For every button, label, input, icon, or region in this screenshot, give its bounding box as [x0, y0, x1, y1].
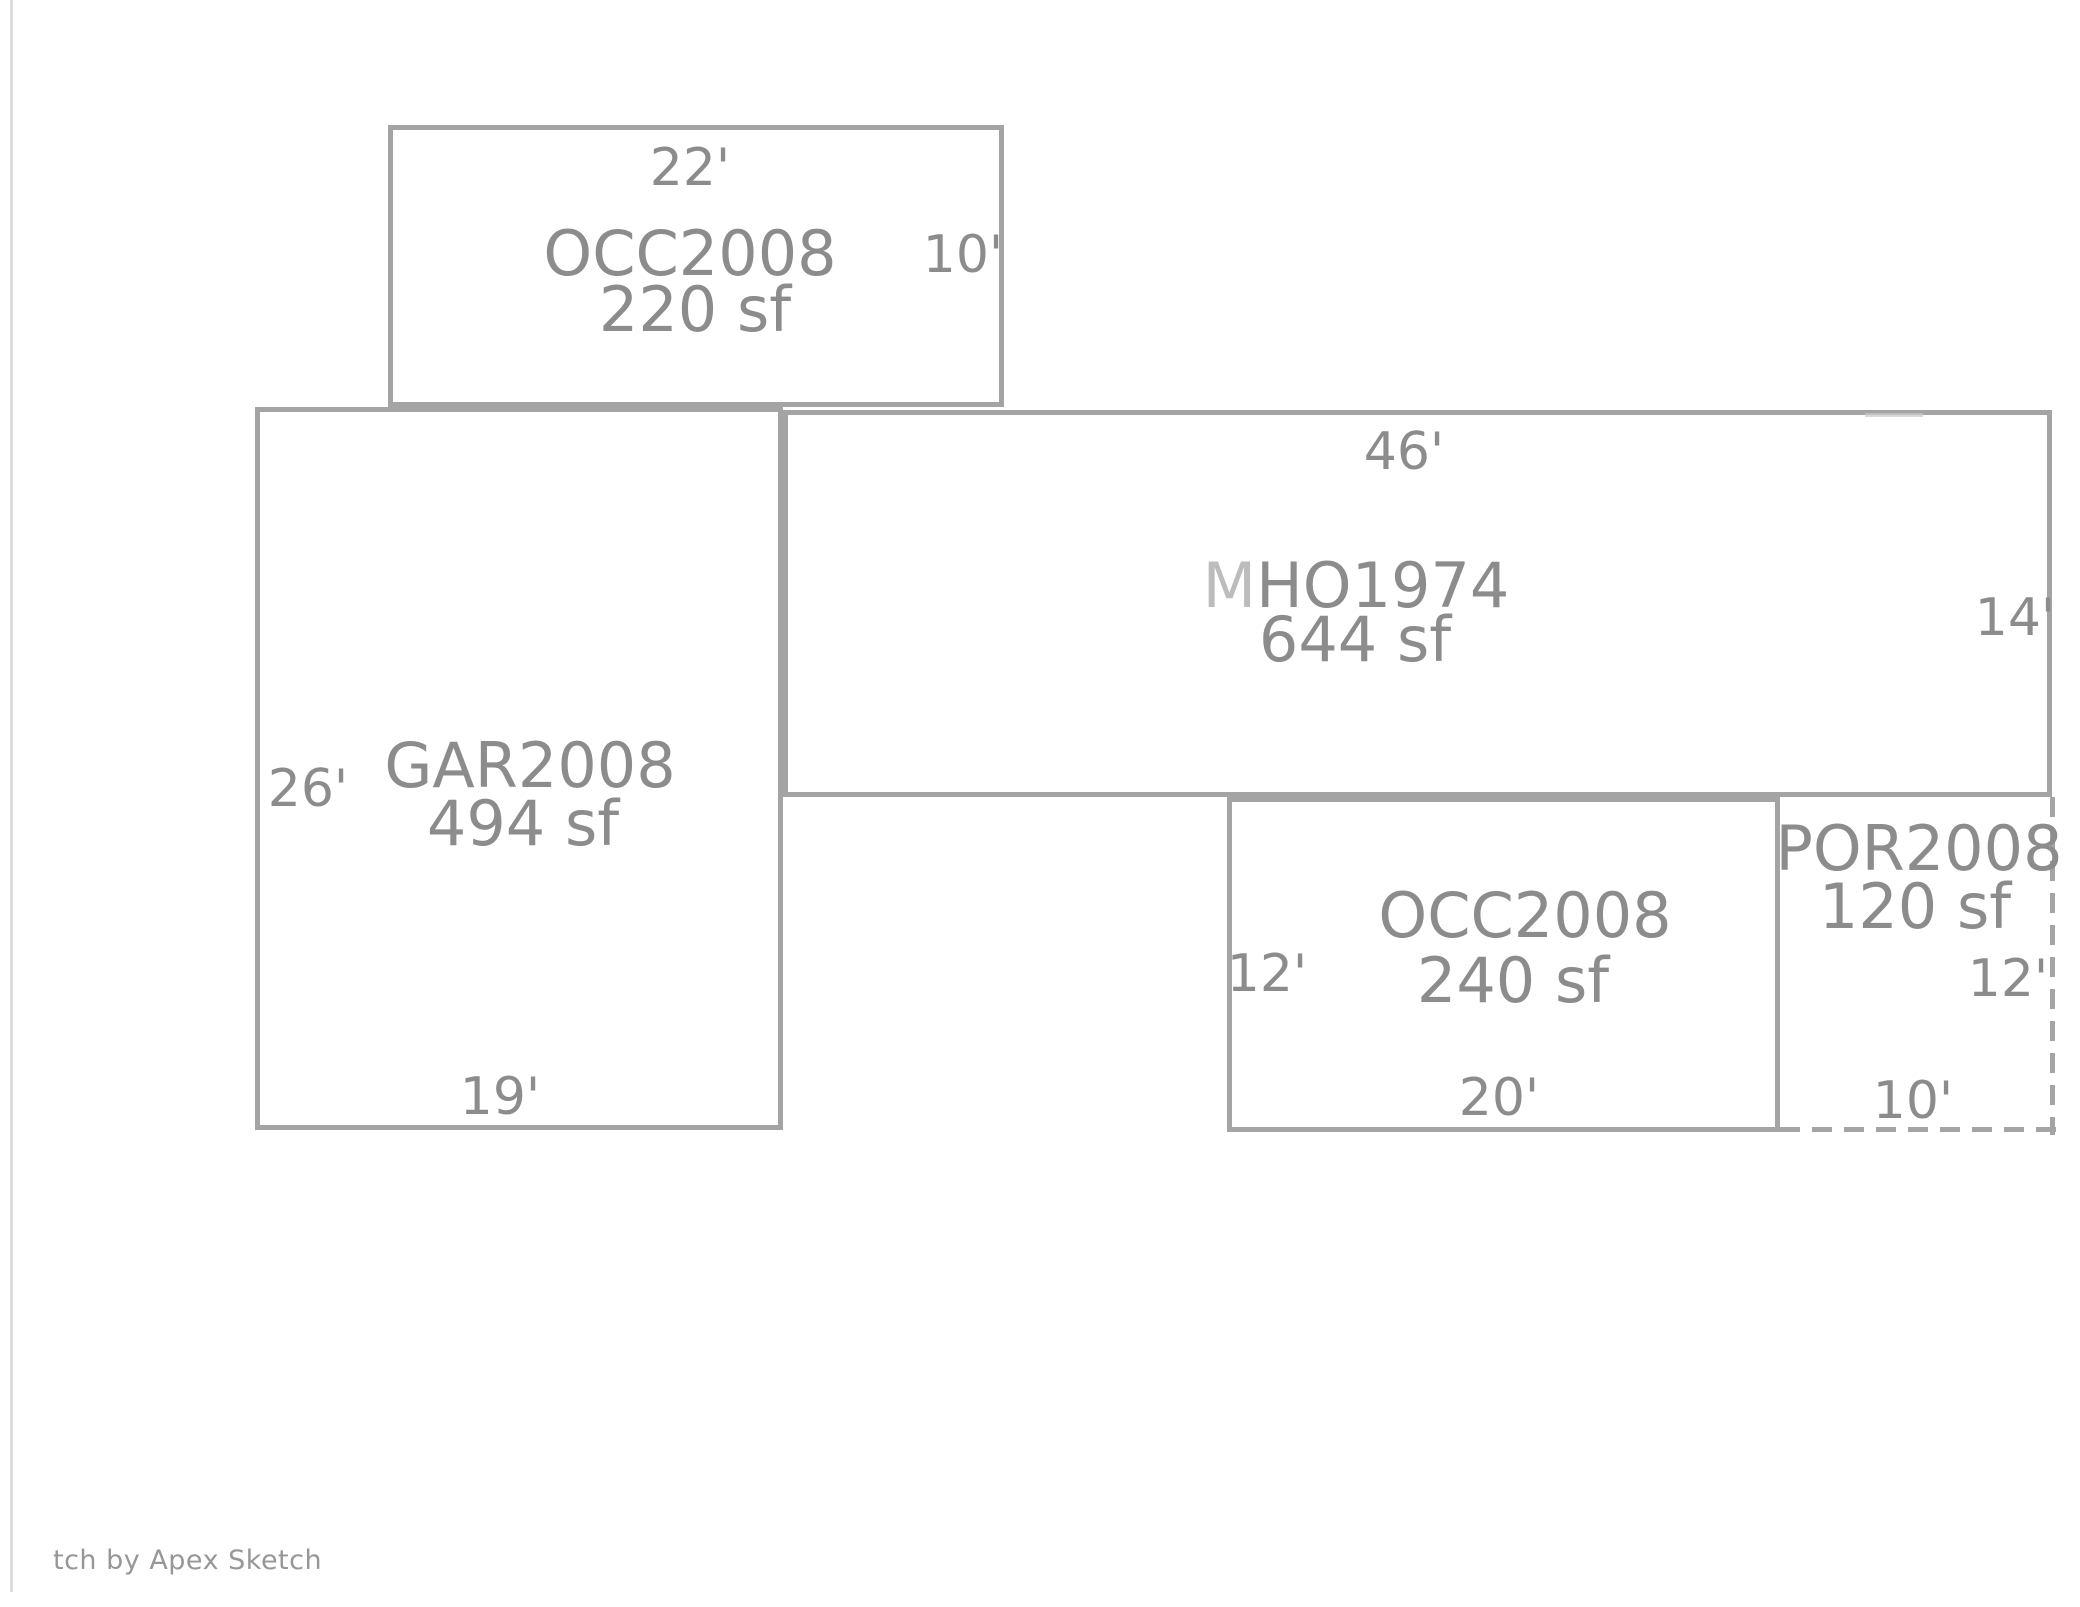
por-area-label: 120 sf	[1819, 876, 2011, 938]
occ-top-area-label: 220 sf	[599, 279, 791, 341]
gar-area-label: 494 sf	[427, 793, 619, 855]
mho-dim-right-label: 14'	[1975, 592, 2055, 644]
mho-dim-top-label: 46'	[1364, 426, 1444, 478]
sketch-page: 22' OCC2008 10' 220 sf 26' GAR2008 494 s…	[0, 0, 2080, 1607]
por-dim-right-label: 12'	[1968, 953, 2048, 1005]
occ-top-dim-top-label: 22'	[650, 142, 730, 194]
occ-bottom-code-label: OCC2008	[1378, 885, 1671, 947]
por-dim-bottom-label: 10'	[1873, 1075, 1953, 1127]
gar-dim-left-label: 26'	[268, 763, 348, 815]
mho-area-label: 644 sf	[1259, 609, 1451, 671]
occ-bottom-dim-bottom-label: 20'	[1459, 1072, 1539, 1124]
scan-smudge-artifact	[1865, 413, 1923, 417]
page-left-edge-scan-line	[10, 0, 13, 1592]
occ-bottom-dim-left-label: 12'	[1227, 948, 1307, 1000]
gar-dim-bottom-label: 19'	[460, 1071, 540, 1123]
occ-top-dim-right-label: 10'	[923, 229, 1003, 281]
apex-sketch-attribution: tch by Apex Sketch	[53, 1545, 322, 1576]
mho-code-prefix: M	[1203, 549, 1257, 622]
occ-bottom-area-label: 240 sf	[1417, 950, 1609, 1012]
